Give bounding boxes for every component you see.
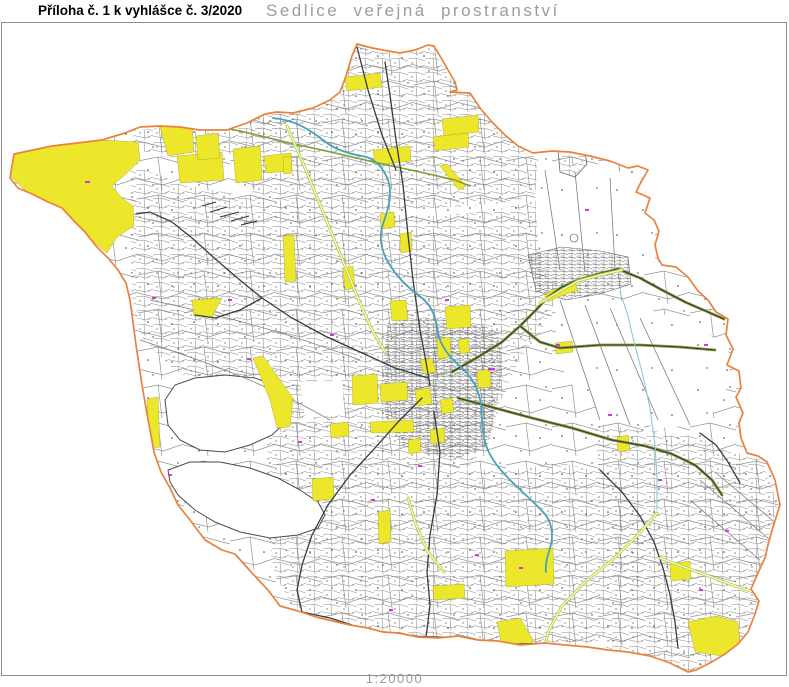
scale-label: 1:20000	[0, 671, 789, 686]
map-canvas	[0, 0, 789, 687]
map-sheet: Příloha č. 1 k vyhlášce č. 3/2020 Sedlic…	[0, 0, 789, 687]
